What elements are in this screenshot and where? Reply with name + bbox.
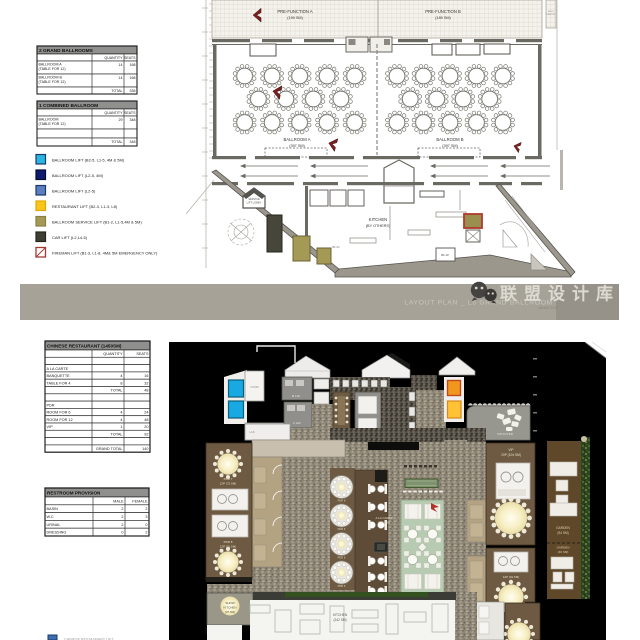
svg-text:12P (91.5M): 12P (91.5M) bbox=[503, 575, 519, 579]
svg-text:(46 SM): (46 SM) bbox=[558, 550, 569, 554]
svg-text:ROOM FOR 12: ROOM FOR 12 bbox=[47, 418, 73, 422]
svg-text:MALE: MALE bbox=[113, 499, 124, 503]
svg-text:2: 2 bbox=[121, 523, 123, 527]
svg-text:URINAL: URINAL bbox=[47, 523, 61, 527]
svg-text:2: 2 bbox=[145, 531, 147, 535]
svg-text:M LAV: M LAV bbox=[292, 394, 300, 398]
svg-text:GARDEN: GARDEN bbox=[556, 526, 570, 530]
svg-text:20P (104 SM): 20P (104 SM) bbox=[501, 453, 521, 457]
svg-text:48: 48 bbox=[144, 418, 148, 422]
svg-text:F LAV: F LAV bbox=[293, 421, 301, 425]
svg-text:PDR 6: PDR 6 bbox=[338, 527, 346, 531]
svg-text:TABLE FOR 4: TABLE FOR 4 bbox=[47, 381, 71, 385]
svg-text:GARDEN: GARDEN bbox=[557, 546, 570, 550]
svg-text:A LA CARTE: A LA CARTE bbox=[375, 516, 392, 520]
svg-text:29: 29 bbox=[119, 118, 123, 122]
svg-text:2: 2 bbox=[121, 515, 123, 519]
svg-text:FIREMAN LIFT (B1-3, L1-8, 4M&: FIREMAN LIFT (B1-3, L1-8, 4M& 5M EMERGEN… bbox=[52, 251, 158, 256]
svg-text:COND: COND bbox=[250, 385, 258, 389]
svg-text:TOTAL: TOTAL bbox=[111, 433, 123, 437]
svg-text:(397 SM): (397 SM) bbox=[442, 144, 458, 148]
svg-text:BALLROOM LIFT (L2-5): BALLROOM LIFT (L2-5) bbox=[52, 189, 96, 194]
svg-text:DRESSING: DRESSING bbox=[47, 531, 67, 535]
svg-text:(94 SM): (94 SM) bbox=[557, 531, 568, 535]
svg-text:RESTROOM PROVISION: RESTROOM PROVISION bbox=[47, 491, 101, 496]
svg-text:BALLROOM A: BALLROOM A bbox=[284, 137, 311, 142]
svg-text:(199 SM): (199 SM) bbox=[287, 16, 303, 20]
svg-text:联盟设计库: 联盟设计库 bbox=[500, 284, 620, 304]
svg-text:BASIN: BASIN bbox=[47, 507, 59, 511]
svg-text:2: 2 bbox=[121, 507, 123, 511]
svg-text:14: 14 bbox=[119, 76, 123, 80]
svg-text:LIFT LOBBY: LIFT LOBBY bbox=[247, 200, 262, 204]
svg-text:336: 336 bbox=[130, 89, 136, 93]
svg-text:A LA CARTE: A LA CARTE bbox=[47, 367, 69, 371]
svg-text:LAS: LAS bbox=[249, 430, 254, 434]
svg-text:W.C: W.C bbox=[47, 515, 54, 519]
svg-text:CHINESE RESTAURANT (1450SM): CHINESE RESTAURANT (1450SM) bbox=[47, 344, 122, 349]
svg-text:VIP: VIP bbox=[508, 448, 513, 452]
svg-text:FEMALE: FEMALE bbox=[132, 499, 148, 503]
svg-text:140: 140 bbox=[142, 447, 148, 451]
svg-text:3: 3 bbox=[145, 515, 147, 519]
svg-text:SERVICE: SERVICE bbox=[248, 197, 260, 201]
svg-text:SHOW: SHOW bbox=[225, 601, 235, 605]
svg-text:SEATS: SEATS bbox=[124, 56, 136, 60]
svg-text:GRAND TOTAL: GRAND TOTAL bbox=[96, 447, 123, 451]
svg-text:VANKE 2019: VANKE 2019 bbox=[538, 306, 558, 310]
svg-text:BALLROOM SERVICE LIFT (B1-2, L: BALLROOM SERVICE LIFT (B1-2, L1-5,4M & 5… bbox=[52, 220, 142, 225]
svg-text:BALLROOM B: BALLROOM B bbox=[436, 137, 463, 142]
svg-text:KITCHEN: KITCHEN bbox=[333, 613, 348, 617]
svg-text:4: 4 bbox=[120, 418, 122, 422]
svg-text:PDR: PDR bbox=[47, 403, 55, 407]
svg-text:(37.5M): (37.5M) bbox=[225, 610, 235, 614]
svg-text:QUANTITY: QUANTITY bbox=[104, 56, 123, 60]
svg-text:KITCHEN: KITCHEN bbox=[369, 217, 387, 222]
svg-text:0: 0 bbox=[121, 531, 123, 535]
svg-text:16: 16 bbox=[144, 374, 148, 378]
svg-text:TOTAL: TOTAL bbox=[111, 89, 122, 93]
svg-text:QUANTITY: QUANTITY bbox=[104, 111, 123, 115]
svg-text:2: 2 bbox=[145, 507, 147, 511]
svg-text:168: 168 bbox=[130, 76, 136, 80]
svg-text:BALLROOM: BALLROOM bbox=[39, 118, 59, 122]
svg-text:(242 SM): (242 SM) bbox=[333, 618, 346, 622]
svg-text:1 COMBINED BALLROOM: 1 COMBINED BALLROOM bbox=[39, 103, 98, 109]
svg-text:348: 348 bbox=[130, 118, 136, 122]
svg-text:BALLROOM LIFT (B2-5, L1-5, 4M: BALLROOM LIFT (B2-5, L1-5, 4M & 5M) bbox=[52, 158, 125, 163]
svg-text:CAR LIFT (L2,L4-5): CAR LIFT (L2,L4-5) bbox=[52, 235, 88, 240]
svg-text:VIP: VIP bbox=[47, 425, 54, 429]
svg-text:PDR 6: PDR 6 bbox=[338, 556, 346, 560]
svg-text:PANTRY: PANTRY bbox=[547, 13, 556, 16]
svg-text:SEATS: SEATS bbox=[124, 111, 136, 115]
svg-text:BALLROOM LIFT (L2-5, 4M): BALLROOM LIFT (L2-5, 4M) bbox=[52, 173, 104, 178]
svg-text:BF-02: BF-02 bbox=[441, 253, 449, 257]
svg-text:(TABLE FOR 12): (TABLE FOR 12) bbox=[39, 67, 66, 71]
svg-text:2 GRAND BALLROOMS: 2 GRAND BALLROOMS bbox=[39, 48, 94, 54]
svg-text:BALLROOM A: BALLROOM A bbox=[39, 63, 63, 67]
svg-text:(189 SM): (189 SM) bbox=[435, 16, 451, 20]
svg-text:BF-S1: BF-S1 bbox=[332, 245, 340, 249]
svg-text:1: 1 bbox=[120, 425, 122, 429]
svg-text:20: 20 bbox=[144, 425, 148, 429]
svg-text:24: 24 bbox=[144, 411, 148, 415]
svg-text:PDR 7: PDR 7 bbox=[224, 477, 233, 481]
svg-text:32: 32 bbox=[144, 381, 148, 385]
svg-text:RESTAURANT LIFT (B2-3, L1-3, L: RESTAURANT LIFT (B2-3, L1-3, L8) bbox=[52, 204, 118, 209]
svg-text:348: 348 bbox=[130, 140, 136, 144]
svg-text:14: 14 bbox=[119, 63, 123, 67]
svg-text:12P (72.9M): 12P (72.9M) bbox=[220, 482, 236, 486]
svg-text:ELEV.: ELEV. bbox=[548, 11, 554, 13]
svg-text:PDR 6: PDR 6 bbox=[338, 584, 346, 588]
svg-text:BALLROOM B: BALLROOM B bbox=[39, 76, 63, 80]
svg-text:PDR 6: PDR 6 bbox=[338, 499, 346, 503]
svg-text:92: 92 bbox=[144, 433, 148, 437]
svg-text:(TABLE FOR 12): (TABLE FOR 12) bbox=[39, 122, 66, 126]
svg-text:(161 SM): (161 SM) bbox=[378, 521, 390, 525]
svg-text:ROOM FOR 6: ROOM FOR 6 bbox=[47, 411, 71, 415]
svg-text:48: 48 bbox=[144, 389, 148, 393]
svg-text:KITCHEN: KITCHEN bbox=[223, 606, 236, 610]
svg-text:QUANTITY: QUANTITY bbox=[103, 352, 123, 356]
svg-text:4: 4 bbox=[120, 374, 122, 378]
svg-text:168: 168 bbox=[130, 63, 136, 67]
svg-text:BANQUETTE: BANQUETTE bbox=[47, 374, 71, 378]
svg-text:PDR 8: PDR 8 bbox=[224, 540, 233, 544]
svg-text:(TABLE FOR 12): (TABLE FOR 12) bbox=[39, 80, 66, 84]
svg-text:VIP FOYER: VIP FOYER bbox=[497, 432, 514, 436]
svg-text:PRE-FUNCTION B: PRE-FUNCTION B bbox=[425, 9, 461, 14]
svg-text:8: 8 bbox=[120, 381, 122, 385]
svg-text:(397 SM): (397 SM) bbox=[289, 144, 305, 148]
svg-text:4: 4 bbox=[120, 411, 122, 415]
svg-text:TOTAL: TOTAL bbox=[111, 140, 122, 144]
svg-text:0: 0 bbox=[145, 523, 147, 527]
svg-text:PRE-FUNCTION A: PRE-FUNCTION A bbox=[277, 9, 313, 14]
svg-text:(BY OTHERS): (BY OTHERS) bbox=[366, 224, 391, 228]
svg-text:TOTAL: TOTAL bbox=[111, 389, 123, 393]
svg-text:SEATS: SEATS bbox=[136, 352, 149, 356]
